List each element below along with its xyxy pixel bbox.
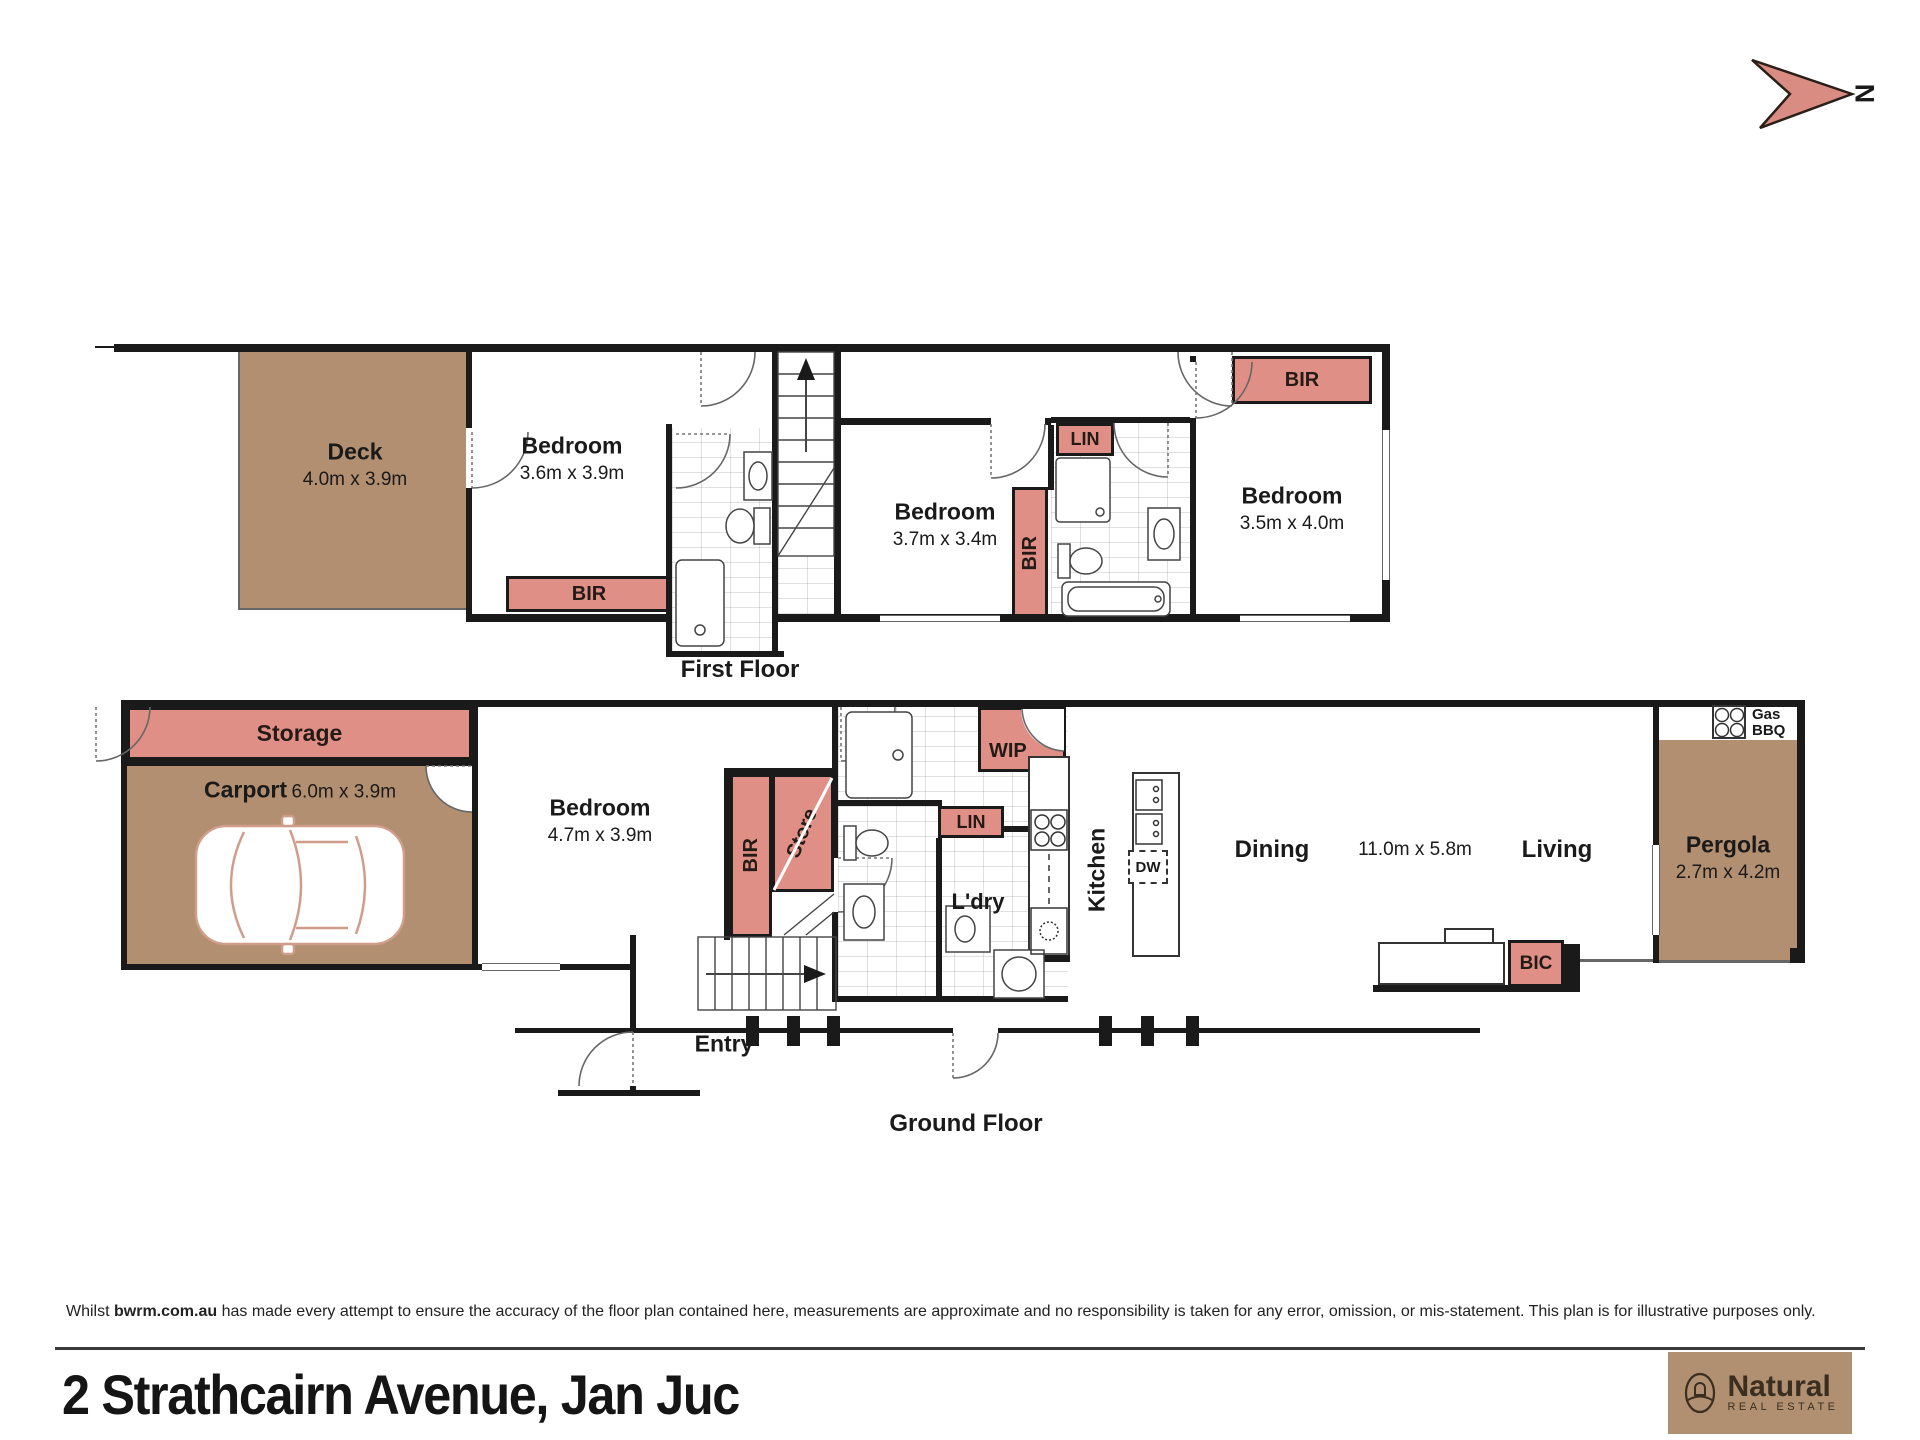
storage-label: Storage: [257, 720, 343, 747]
gf-bedroom-dims: 4.7m x 3.9m: [548, 825, 653, 847]
bed1-ensuite-wall: [666, 424, 672, 657]
ldry-label: L'dry: [952, 889, 1005, 915]
bic-label: BIC: [1520, 953, 1553, 975]
bir-bed1-label: BIR: [572, 583, 606, 606]
gf-left-wall: [121, 700, 127, 970]
agency-name: Natural: [1727, 1373, 1838, 1401]
carport-label-group: Carport 6.0m x 3.9m: [204, 777, 396, 804]
carport-dims: 6.0m x 3.9m: [291, 782, 396, 803]
bir-bed3-box: BIR: [1232, 356, 1372, 404]
kitchen-label: Kitchen: [1084, 828, 1111, 912]
bed2-dims: 3.7m x 3.4m: [893, 529, 998, 551]
agency-logo: Natural REAL ESTATE: [1668, 1352, 1852, 1434]
north-label: N: [1848, 84, 1879, 104]
bir-gf-label: BIR: [740, 838, 763, 872]
bed2-label: Bedroom: [895, 499, 996, 526]
carport-bottom-wall: [121, 964, 478, 970]
bath-top-wall: [1051, 417, 1190, 423]
deck-post: [1186, 1016, 1199, 1046]
bed3-side-window: [1382, 430, 1390, 580]
stairs-direction-arrow: [804, 965, 826, 983]
kitchen-label-wrap: Kitchen: [1084, 828, 1111, 912]
bic-right-wall: [1564, 944, 1580, 992]
deck-dims: 4.0m x 3.9m: [303, 469, 408, 491]
bed2-window: [880, 615, 1000, 622]
wip-label: WIP: [989, 740, 1027, 763]
wc-ldry-wall: [936, 838, 942, 1002]
living-sliding-door: [1652, 845, 1660, 935]
dishwasher-box: DW: [1128, 850, 1168, 884]
pergola-bottom-line: [1659, 960, 1805, 963]
deck-label: Deck: [328, 439, 383, 466]
ff-bottom-wall-left: [466, 614, 668, 622]
dishwasher-label: DW: [1136, 859, 1161, 876]
carport-right-wall: [472, 700, 478, 970]
living-label: Living: [1522, 836, 1593, 864]
bed2-top-wall: [841, 418, 991, 425]
deck-bed1-wall-upper: [466, 352, 472, 428]
first-floor-title: First Floor: [681, 656, 800, 684]
pergola-dims: 2.7m x 4.2m: [1676, 862, 1781, 884]
agency-subtitle: REAL ESTATE: [1727, 1401, 1838, 1413]
storage-bottom-wall: [121, 759, 478, 766]
bir-bed2-label: BIR: [1019, 536, 1042, 570]
bic-bottom-wall: [1373, 985, 1580, 992]
carport-label: Carport: [204, 777, 287, 803]
open-plan-dims: 11.0m x 5.8m: [1358, 839, 1472, 861]
deck-edge-right: [998, 1028, 1480, 1033]
deck-post: [827, 1016, 840, 1046]
bed3-label: Bedroom: [1242, 483, 1343, 510]
bed3-left-wall-stub: [1190, 356, 1196, 362]
bir-bed1-box: BIR: [506, 576, 672, 612]
door-arc: [1178, 352, 1232, 406]
entry-wall-upper: [630, 935, 636, 1032]
store-label: Store: [783, 805, 823, 861]
ensuite-tiles: [672, 428, 776, 653]
bed1-label: Bedroom: [522, 433, 623, 460]
deck-post: [1099, 1016, 1112, 1046]
wetzone-bottom-wall: [832, 996, 1068, 1002]
lin-gf-box: LIN: [938, 806, 1004, 838]
shower-room-bottom-wall: [838, 800, 942, 806]
door-arc: [953, 1033, 998, 1078]
bir-gf-box: BIR: [730, 774, 772, 937]
gf-top-wall: [121, 700, 1805, 707]
lin-gf-label: LIN: [957, 812, 986, 833]
stairs-first-floor: [778, 352, 834, 556]
porch-bottom-wall: [558, 1090, 700, 1096]
bed3-dims: 3.5m x 4.0m: [1240, 513, 1345, 535]
tv-cabinet: [1378, 942, 1505, 985]
stairs-up-arrow: [797, 358, 815, 380]
kitchen-bench: [1028, 756, 1070, 962]
disclaimer-brand: bwrm.com.au: [114, 1303, 217, 1320]
deck-bed1-wall-lower: [466, 488, 472, 614]
lin-ff-label: LIN: [1071, 429, 1100, 450]
stairs-bed2-wall: [834, 352, 841, 622]
agency-logo-icon: [1681, 1369, 1719, 1417]
property-address: 2 Strathcairn Avenue, Jan Juc: [62, 1362, 739, 1427]
pergola-right-wall: [1797, 700, 1805, 963]
door-arc: [701, 352, 755, 406]
floorplan-page: BIR BIR LIN BIR Storage BIR Store LIN WI…: [0, 0, 1920, 1440]
deck-bottom-edge: [240, 608, 466, 610]
bed1-dims: 3.6m x 3.9m: [520, 463, 625, 485]
bed3-window: [1240, 615, 1350, 622]
gas-bbq-unit: [1712, 705, 1746, 739]
ensuite-stairs-wall: [772, 352, 778, 657]
bbq-label: BBQ: [1752, 722, 1785, 739]
pergola-label: Pergola: [1686, 832, 1770, 859]
entry-label: Entry: [695, 1031, 754, 1058]
gf-bedroom-window: [482, 963, 560, 971]
kitchen-bench-base: [1028, 955, 1070, 962]
lin-ff-box: LIN: [1056, 423, 1114, 456]
deck-left-edge: [238, 352, 240, 610]
bir2-top-wall: [1048, 425, 1054, 490]
bic-box: BIC: [1508, 940, 1564, 987]
wetzone-left-wall-lower: [832, 912, 838, 1002]
bir-bed3-label: BIR: [1285, 369, 1319, 392]
bed3-left-wall: [1190, 418, 1196, 622]
gas-label: Gas: [1752, 706, 1780, 723]
fireplace-box: [1444, 928, 1494, 944]
pergola-corner-post: [1790, 948, 1805, 963]
living-bottom-line: [1580, 959, 1659, 962]
gf-bedroom-label: Bedroom: [550, 795, 651, 822]
bir-store-top-wall: [724, 768, 838, 774]
door-arc: [579, 1032, 633, 1086]
ground-floor-title: Ground Floor: [889, 1110, 1042, 1138]
footer-divider: [55, 1347, 1865, 1350]
storage-box: Storage: [127, 707, 472, 760]
understairs-tiles: [778, 556, 834, 614]
dining-label: Dining: [1235, 836, 1310, 864]
disclaimer-text: Whilst bwrm.com.au has made every attemp…: [66, 1303, 1816, 1321]
wetzone-left-wall-upper: [832, 700, 838, 858]
door-arc: [991, 424, 1045, 478]
ff-top-wall: [114, 344, 1390, 352]
deck-post: [1141, 1016, 1154, 1046]
north-arrow: [1752, 60, 1852, 128]
bir-left-wall: [724, 768, 730, 940]
deck-post: [787, 1016, 800, 1046]
bir-bed2-box: BIR: [1012, 487, 1048, 620]
store-box: Store: [772, 774, 834, 892]
